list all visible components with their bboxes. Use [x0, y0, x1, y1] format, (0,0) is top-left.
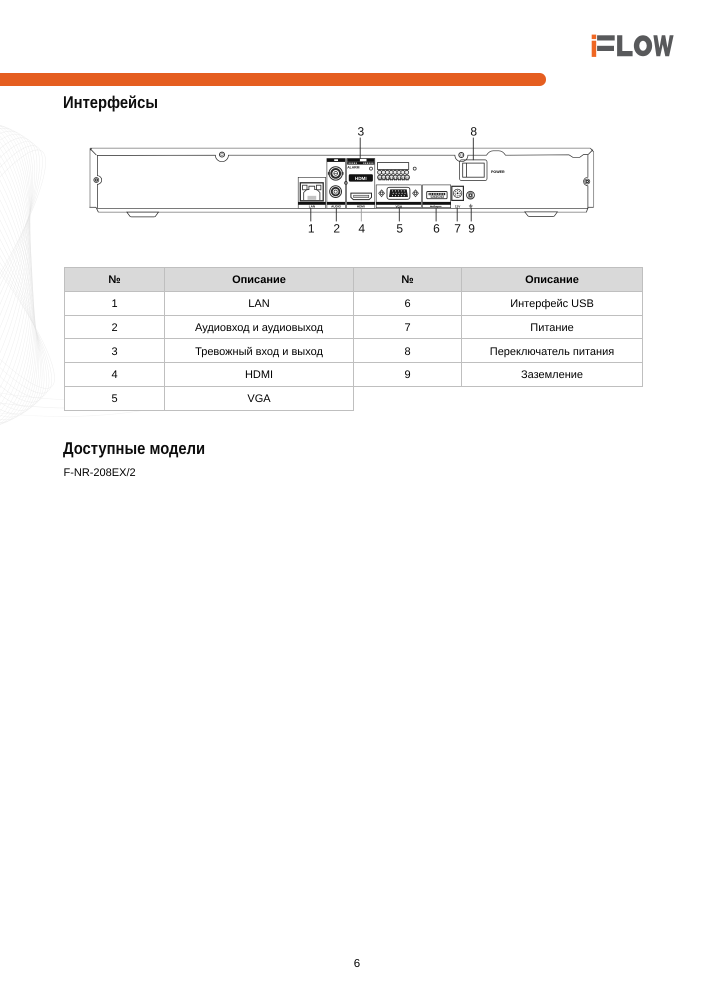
svg-text:12V: 12V	[455, 205, 461, 209]
svg-text:HDMI: HDMI	[355, 176, 367, 181]
svg-text:1: 1	[308, 222, 315, 236]
svg-text:7: 7	[454, 222, 461, 236]
svg-text:ALARM: ALARM	[347, 166, 359, 170]
svg-text:LAN: LAN	[309, 205, 316, 209]
svg-text:VGA: VGA	[395, 205, 402, 209]
svg-text:AUDIO: AUDIO	[331, 205, 342, 209]
svg-text:3: 3	[357, 124, 364, 138]
svg-text:5: 5	[396, 222, 403, 236]
svg-text:9: 9	[468, 222, 475, 236]
svg-text:2: 2	[333, 222, 340, 236]
svg-text:POWER: POWER	[491, 170, 505, 174]
svg-text:HDMI: HDMI	[357, 205, 365, 209]
svg-text:6: 6	[433, 222, 440, 236]
svg-text:4: 4	[358, 222, 365, 236]
svg-text:8: 8	[470, 124, 477, 138]
